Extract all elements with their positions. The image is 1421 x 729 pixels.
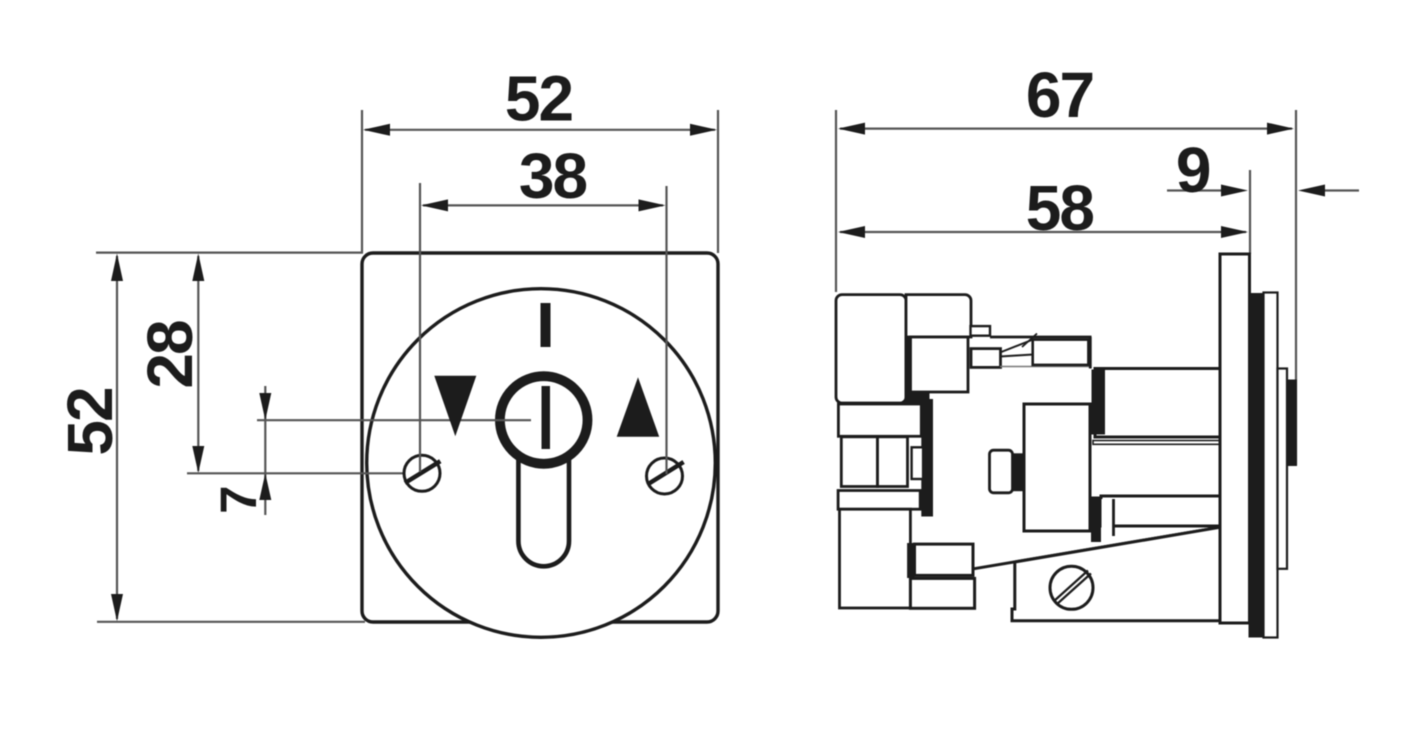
svg-text:58: 58 [1026,172,1094,244]
svg-text:9: 9 [1176,134,1210,206]
svg-text:52: 52 [505,63,573,135]
svg-text:38: 38 [519,140,587,212]
svg-text:7: 7 [210,487,267,514]
svg-text:28: 28 [134,321,206,389]
svg-text:52: 52 [54,388,126,456]
svg-text:67: 67 [1026,59,1093,131]
